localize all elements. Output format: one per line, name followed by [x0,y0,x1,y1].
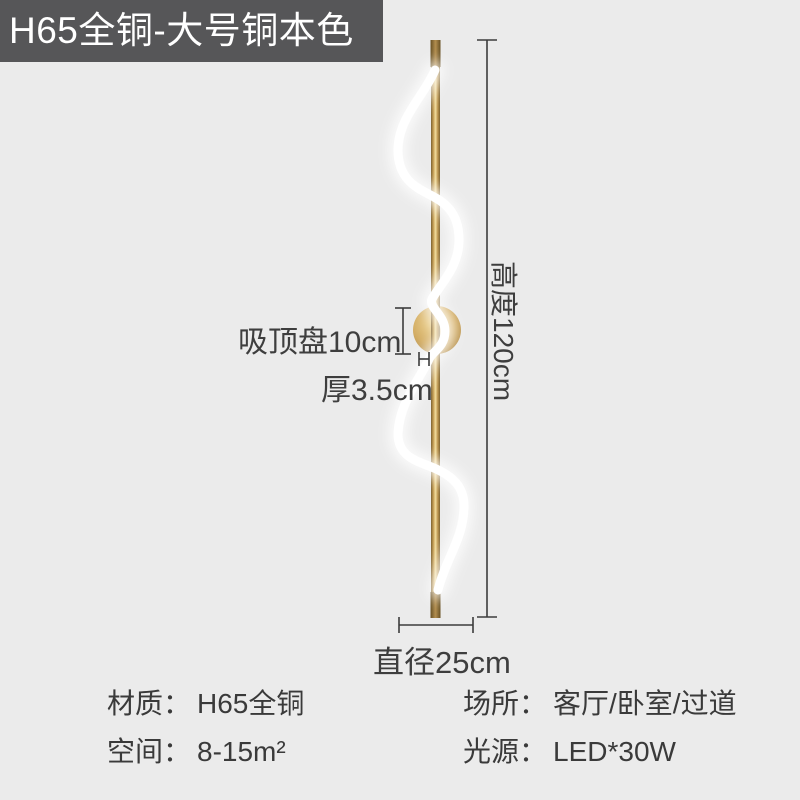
spec-row-lightsource: 光源：LED*30W [463,730,676,770]
spec-row-space: 空间：8-15m² [107,730,286,770]
thickness-label: 厚3.5cm [321,365,433,409]
spec-value: 8-15m² [197,736,286,767]
spec-label: 材质： [107,688,191,719]
spec-label: 场所： [463,688,547,719]
spec-value: LED*30W [553,736,676,767]
spec-value: H65全铜 [197,688,304,719]
plate-size-label: 吸顶盘10cm [238,317,392,361]
spec-row-material: 材质：H65全铜 [107,682,304,722]
variant-banner: H65全铜-大号铜本色 [0,0,383,62]
diameter-dimension-line [399,617,473,633]
spec-label: 空间： [107,736,191,767]
spec-row-place: 场所：客厅/卧室/过道 [463,682,737,722]
product-image: H65全铜-大号铜本色 吸顶盘10cm 厚3.5cm 高度120cm 直径25c… [0,0,800,800]
variant-banner-title: H65全铜-大号铜本色 [9,10,354,51]
height-label: 高度120cm [488,261,518,401]
diameter-label: 直径25cm [373,637,511,682]
spec-value: 客厅/卧室/过道 [553,688,737,719]
spec-label: 光源： [463,736,547,767]
